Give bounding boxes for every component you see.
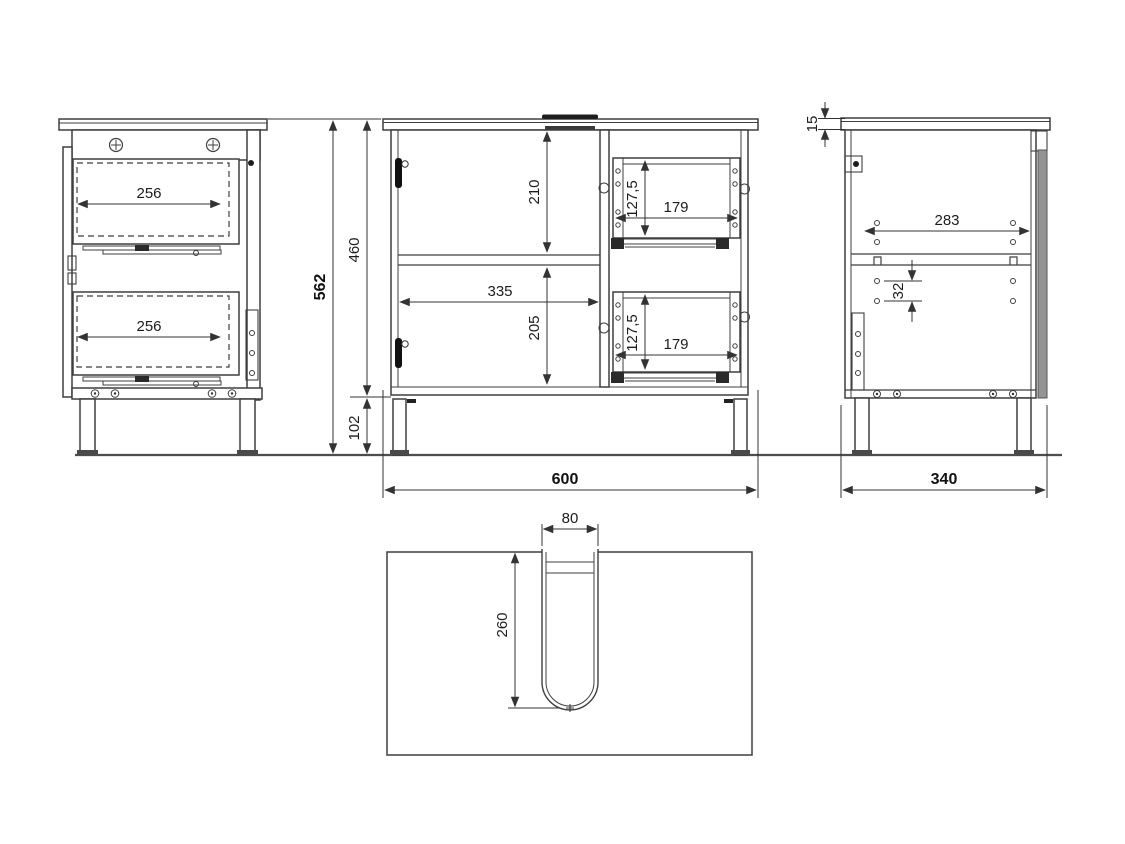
dim-overall-width: 600 <box>383 390 758 498</box>
leg <box>852 398 1034 455</box>
dim-label: 460 <box>346 237 363 262</box>
fitting-dot <box>248 160 254 166</box>
sink-cutout-edge <box>542 115 598 120</box>
technical-drawing: 256 256 562 460 102 <box>0 0 1125 844</box>
dim-carcass-height: 460 <box>346 121 367 395</box>
front-view: 210 205 335 127,5 179 127,5 179 <box>383 115 758 499</box>
dim-label: 335 <box>487 283 512 300</box>
drawing-canvas: 256 256 562 460 102 <box>0 0 1125 844</box>
dim-label: 256 <box>136 318 161 335</box>
dim-overall-height: 562 <box>312 121 333 453</box>
dim-label: 179 <box>663 336 688 353</box>
dim-worktop-thickness: 15 <box>804 102 845 147</box>
plumbing-cutout <box>542 549 598 710</box>
dim-label: 340 <box>931 471 958 488</box>
lower-drawer-side <box>73 292 239 387</box>
dim-label: 256 <box>136 185 161 202</box>
top-view: 80 260 <box>387 510 752 755</box>
height-dimensions: 562 460 102 <box>268 119 391 453</box>
dim-label: 80 <box>562 510 579 527</box>
door-edge <box>1038 150 1047 398</box>
left-side-view: 256 256 <box>59 119 267 455</box>
screw-icon <box>110 139 123 152</box>
right-side-view: 15 283 32 <box>804 102 1050 498</box>
dim-label: 127,5 <box>624 180 641 218</box>
dim-label: 562 <box>312 274 329 301</box>
leg <box>77 399 258 455</box>
dim-label: 179 <box>663 199 688 216</box>
screw-icon <box>207 139 220 152</box>
dim-label: 15 <box>804 116 821 133</box>
dim-label: 600 <box>552 471 579 488</box>
dim-label: 127,5 <box>624 314 641 352</box>
dim-label: 102 <box>346 415 363 440</box>
dim-label: 32 <box>890 283 907 300</box>
dim-label: 283 <box>934 212 959 229</box>
dim-cutout-width: 80 <box>542 510 598 546</box>
upper-drawer-side <box>73 159 239 256</box>
dim-label: 210 <box>526 179 543 204</box>
dim-label: 260 <box>494 612 511 637</box>
dim-label: 205 <box>526 315 543 340</box>
fitting-dot <box>853 161 859 167</box>
dim-leg-height: 102 <box>346 399 367 453</box>
dim-cutout-depth: 260 <box>494 554 574 713</box>
leg <box>390 399 750 455</box>
